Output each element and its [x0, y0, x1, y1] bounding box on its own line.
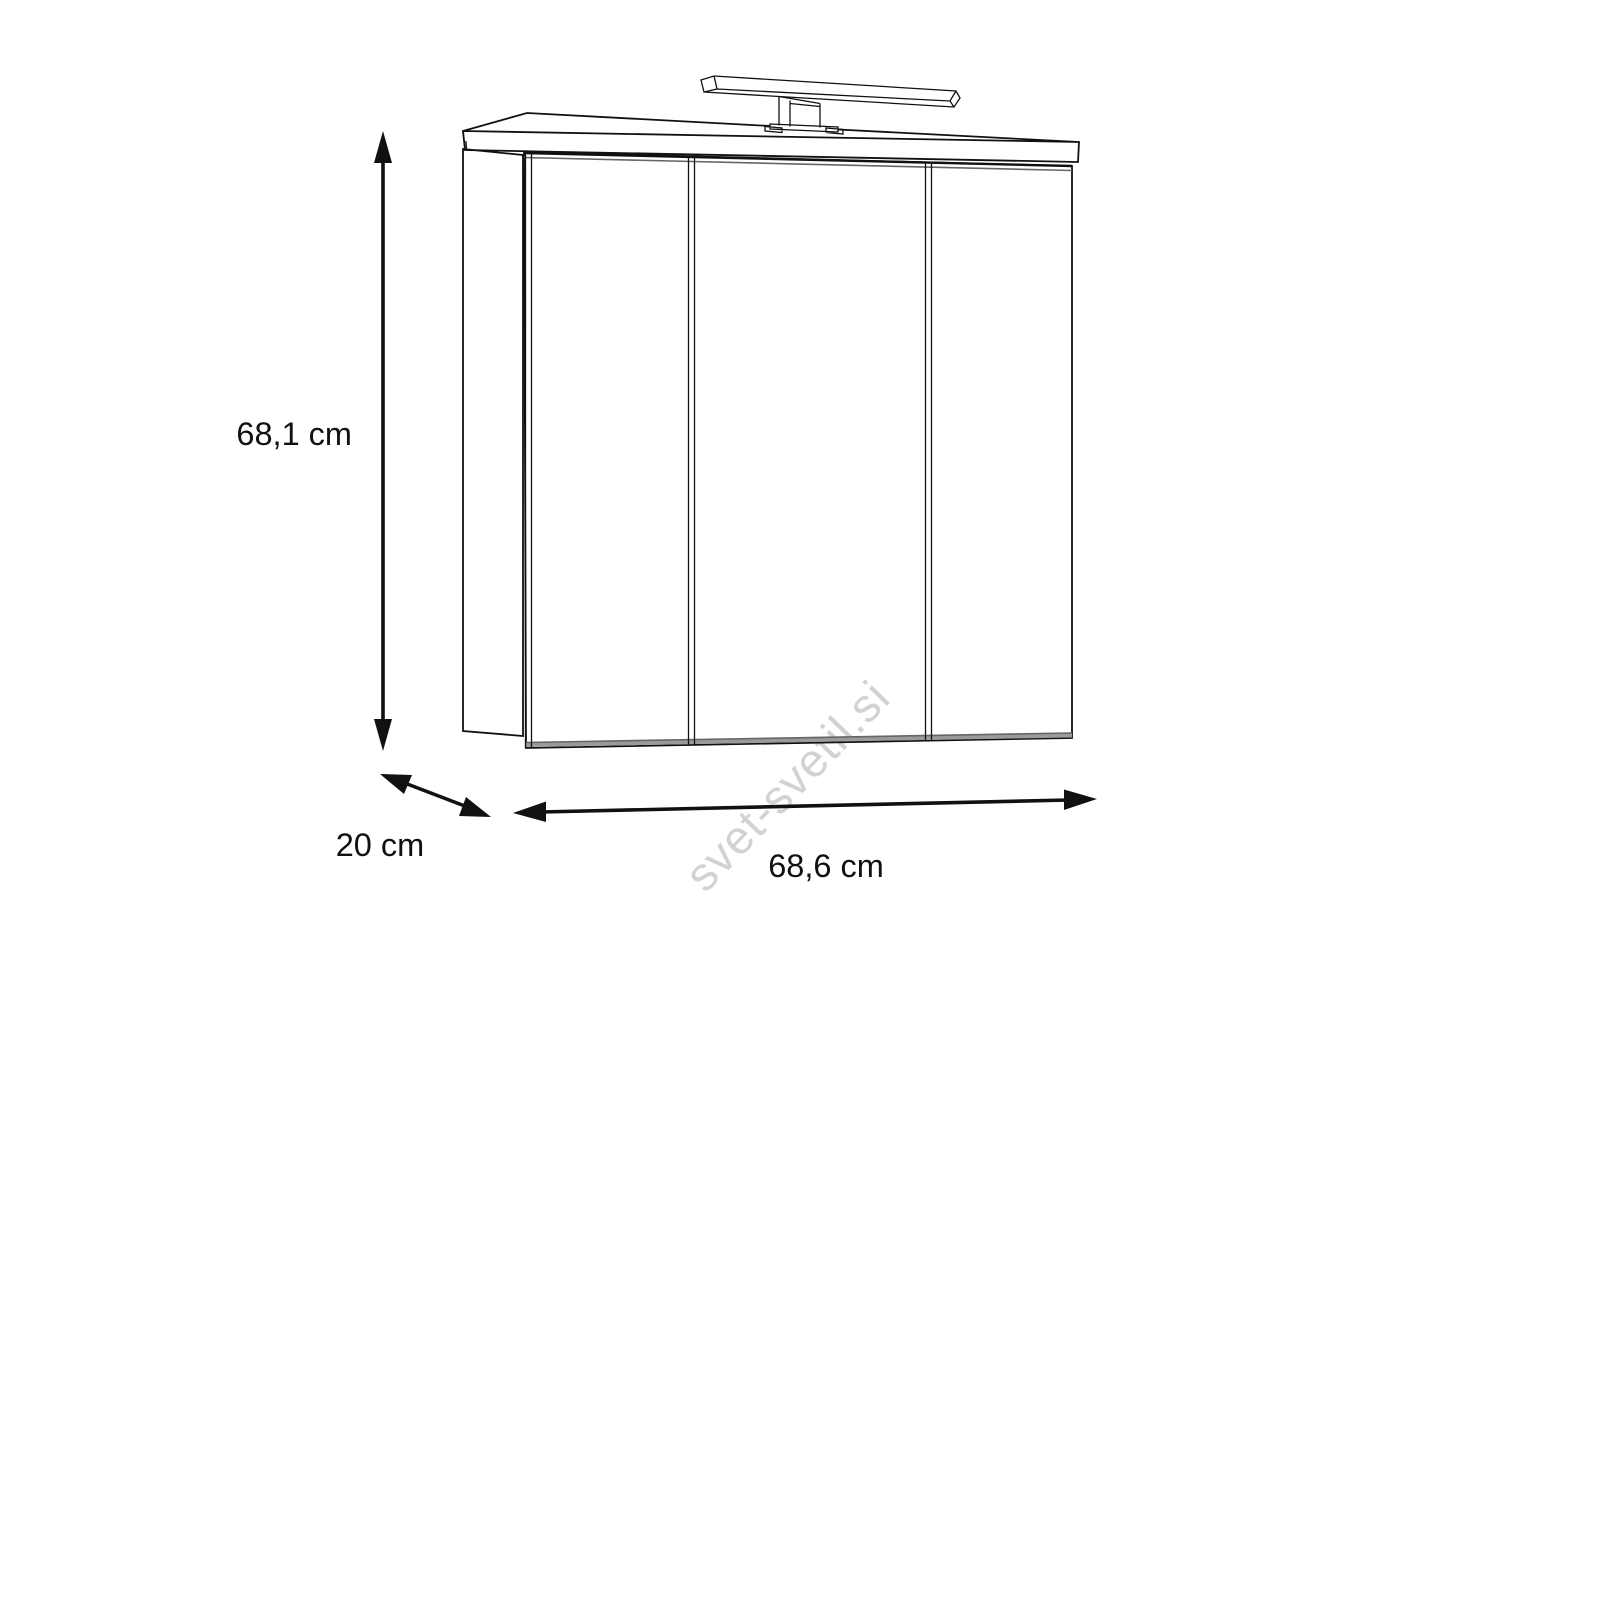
- light-bar-face: [701, 76, 960, 107]
- width-dimension-label: 68,6 cm: [768, 848, 884, 884]
- arrow-up-head: [374, 131, 392, 163]
- diagram-page: svet-svetil.si: [0, 0, 1600, 1600]
- arrow-upleft-head: [380, 774, 412, 794]
- height-dimension-arrow: [374, 131, 392, 751]
- arrow-right-head: [1064, 790, 1097, 811]
- side-panel-face: [463, 149, 523, 736]
- depth-dimension-arrow: [380, 774, 491, 817]
- doors-face: [524, 152, 1072, 748]
- arrow-down-head: [374, 719, 392, 751]
- depth-dimension-label: 20 cm: [336, 827, 425, 863]
- height-dimension-label: 68,1 cm: [236, 416, 352, 452]
- arrow-downright-head: [459, 797, 491, 817]
- light-bar-stem: [779, 97, 820, 128]
- cabinet-dimension-diagram: svet-svetil.si: [0, 0, 1600, 1600]
- cabinet-fills: [463, 76, 1079, 748]
- arrow-left-head: [513, 802, 546, 823]
